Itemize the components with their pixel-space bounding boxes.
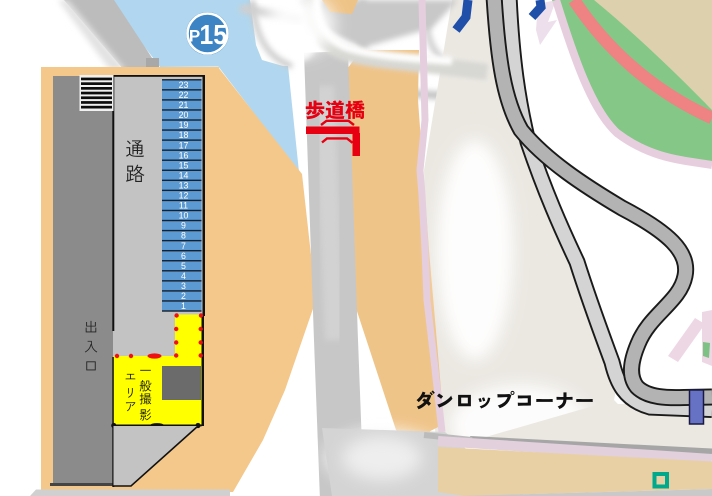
svg-text:P: P [189,27,200,46]
svg-text:6: 6 [181,251,186,261]
svg-text:5: 5 [181,261,186,271]
svg-text:18: 18 [179,130,189,140]
svg-text:20: 20 [179,110,189,120]
svg-text:4: 4 [181,271,186,281]
svg-text:3: 3 [181,281,186,291]
svg-text:17: 17 [179,140,189,150]
svg-text:21: 21 [179,100,189,110]
svg-text:13: 13 [179,180,189,190]
svg-text:23: 23 [179,80,189,90]
svg-text:1: 1 [181,301,186,311]
svg-text:19: 19 [179,120,189,130]
svg-text:8: 8 [181,231,186,241]
svg-text:12: 12 [179,191,189,201]
svg-text:7: 7 [181,241,186,251]
svg-text:11: 11 [179,201,188,211]
svg-text:9: 9 [181,221,186,231]
svg-text:15: 15 [179,160,189,170]
svg-text:16: 16 [179,150,189,160]
svg-text:14: 14 [179,170,189,180]
svg-text:10: 10 [179,211,189,221]
svg-text:22: 22 [179,90,189,100]
svg-text:15: 15 [200,19,228,50]
svg-text:2: 2 [181,291,186,301]
